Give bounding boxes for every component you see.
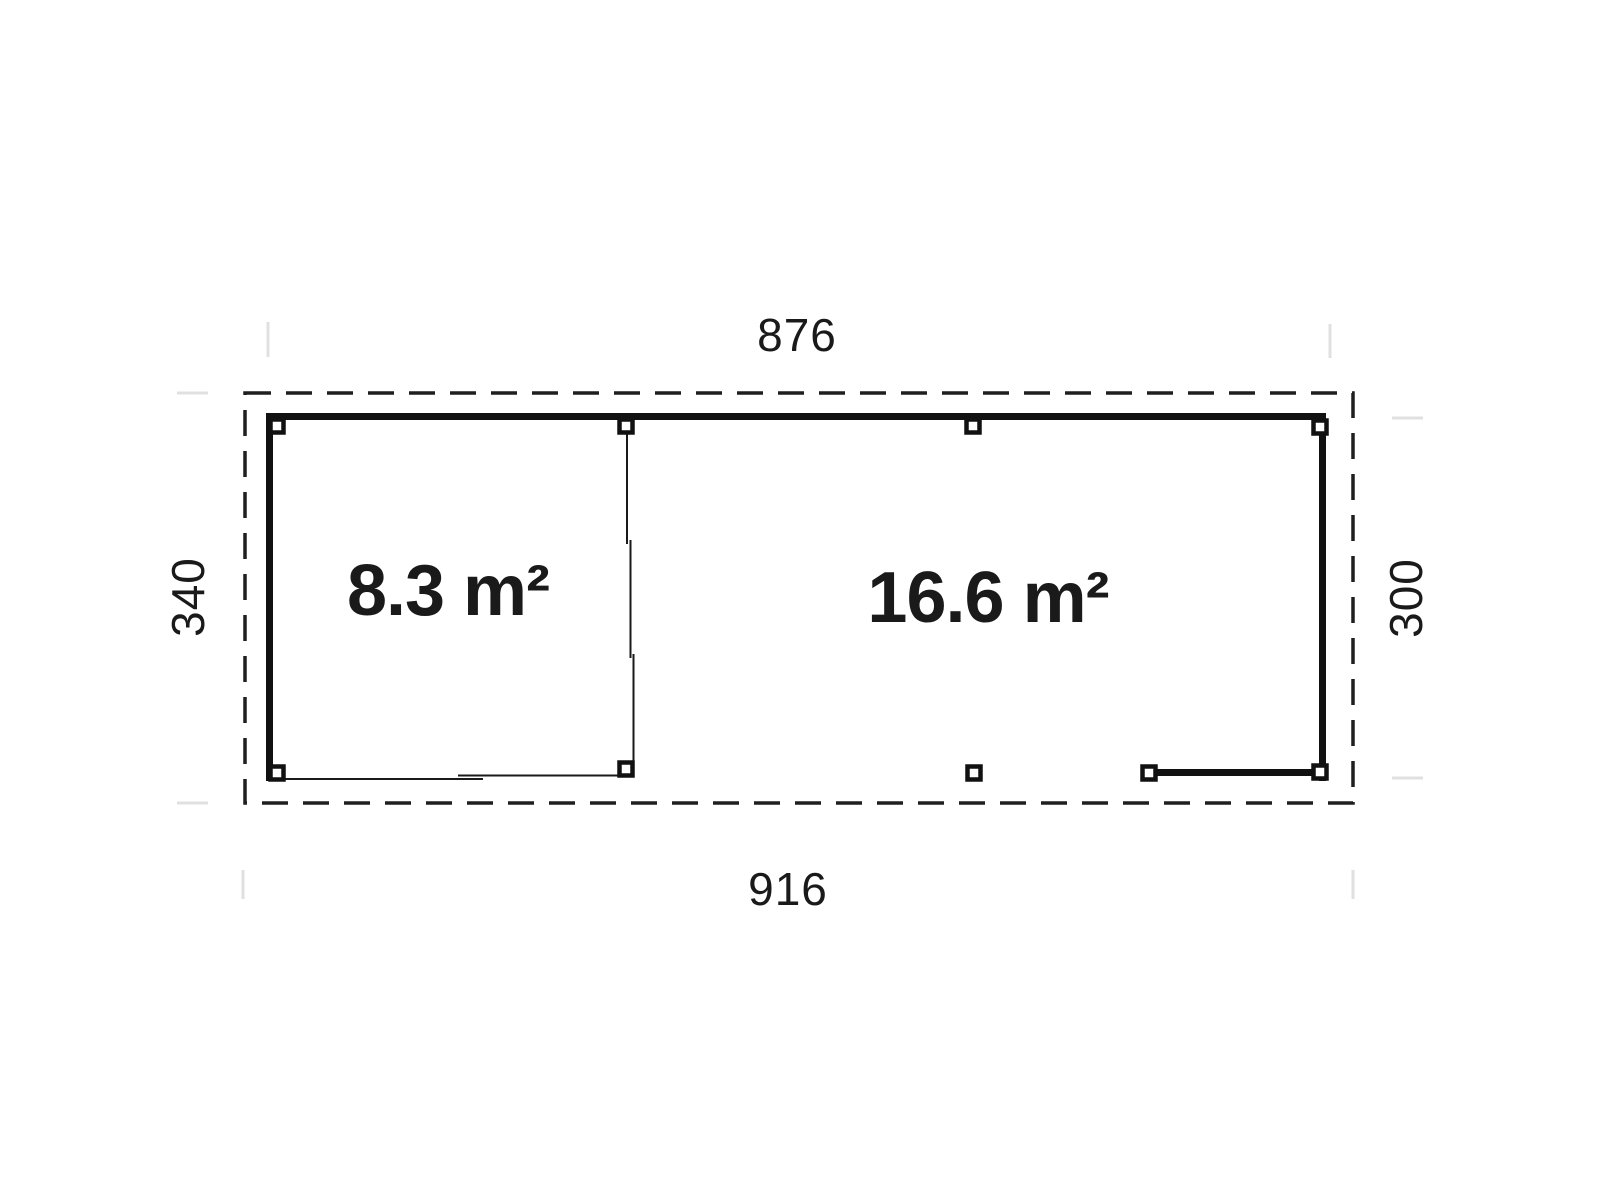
right-wall (1319, 413, 1326, 781)
plan-drawing (0, 0, 1600, 1199)
top-wall (266, 413, 1326, 420)
dimension-top-width: 876 (757, 308, 837, 362)
room-area-right: 16.6 m² (867, 557, 1108, 639)
post-top-left (271, 420, 284, 433)
post-bottom-divider (620, 763, 633, 776)
bottom-right-wall (1145, 769, 1326, 776)
post-bottom-right (1314, 766, 1327, 779)
post-bottom-wall-end (1143, 767, 1156, 780)
dimension-bottom-width: 916 (748, 862, 828, 916)
post-bottom-middle (968, 767, 981, 780)
dimension-right-depth: 300 (1379, 558, 1433, 638)
post-top-divider (620, 420, 633, 433)
floor-plan: 876 916 340 300 8.3 m² 16.6 m² (0, 0, 1600, 1199)
post-top-middle (967, 420, 980, 433)
post-bottom-left (271, 767, 284, 780)
dimension-left-depth: 340 (161, 557, 215, 637)
left-wall (266, 413, 273, 781)
room-area-left: 8.3 m² (347, 550, 549, 632)
post-top-right (1314, 421, 1327, 434)
